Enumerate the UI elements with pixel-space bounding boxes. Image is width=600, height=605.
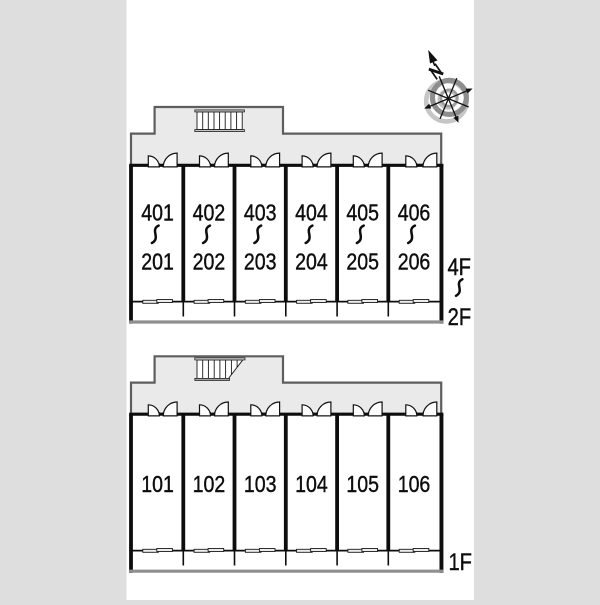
svg-text:404: 404 xyxy=(295,200,328,226)
svg-text:202: 202 xyxy=(193,249,226,275)
svg-text:101: 101 xyxy=(141,472,174,498)
svg-text:402: 402 xyxy=(193,200,226,226)
svg-text:403: 403 xyxy=(244,200,277,226)
svg-text:1F: 1F xyxy=(448,549,472,576)
svg-text:203: 203 xyxy=(244,249,277,275)
svg-text:103: 103 xyxy=(244,472,277,498)
svg-text:2F: 2F xyxy=(448,303,472,330)
svg-text:102: 102 xyxy=(193,472,226,498)
svg-text:4F: 4F xyxy=(447,253,471,280)
svg-text:205: 205 xyxy=(346,249,379,275)
svg-text:104: 104 xyxy=(295,472,328,498)
svg-text:204: 204 xyxy=(295,249,328,275)
svg-text:401: 401 xyxy=(141,200,174,226)
svg-text:201: 201 xyxy=(141,249,174,275)
svg-text:206: 206 xyxy=(398,249,431,275)
svg-text:105: 105 xyxy=(346,472,379,498)
svg-text:106: 106 xyxy=(398,472,431,498)
svg-text:405: 405 xyxy=(346,200,379,226)
svg-text:406: 406 xyxy=(398,200,431,226)
